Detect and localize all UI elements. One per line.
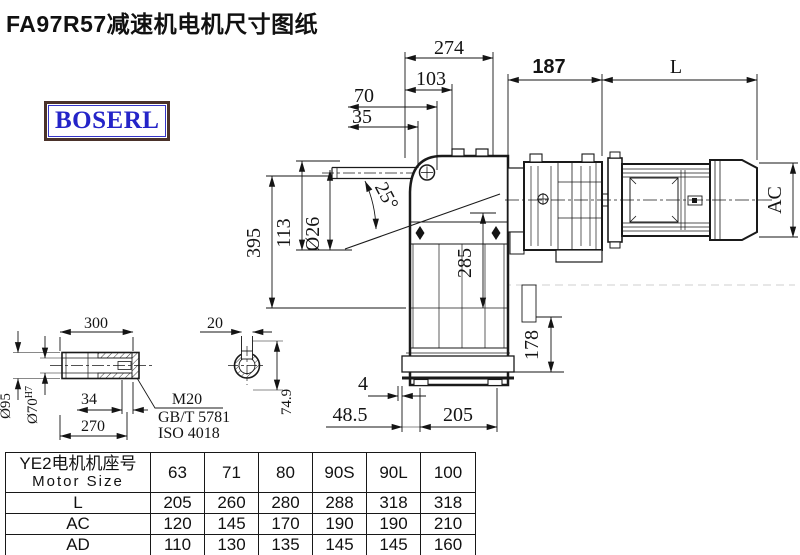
cell-AD-80: 135 [259, 535, 313, 555]
col-80: 80 [259, 453, 313, 493]
callout-gbt5781: GB/T 5781 [158, 409, 230, 426]
row-label-L: L [6, 493, 151, 514]
table-header-cn: YE2电机机座号 [6, 455, 150, 474]
table-header-en: Motor Size [6, 474, 150, 491]
cell-AC-90s: 190 [313, 514, 367, 535]
dim-95: Ø95 [0, 393, 14, 419]
cell-AC-63: 120 [151, 514, 205, 535]
table-row-L: L 205 260 280 288 318 318 [6, 493, 476, 514]
motor-size-table: YE2电机机座号 Motor Size 63 71 80 90S 90L 100… [5, 452, 476, 555]
cell-L-90l: 318 [367, 493, 421, 514]
dim-L: L [670, 56, 682, 78]
dim-113: 113 [273, 218, 295, 247]
dim-274: 274 [434, 37, 464, 59]
table-row-AD: AD 110 130 135 145 145 160 [6, 535, 476, 555]
table-row-AC: AC 120 145 170 190 190 210 [6, 514, 476, 535]
cell-L-100: 318 [421, 493, 476, 514]
dim-178: 178 [521, 330, 543, 360]
dim-25deg: 25° [370, 179, 403, 214]
r57-gear-unit [524, 154, 602, 262]
cell-L-90s: 288 [313, 493, 367, 514]
col-63: 63 [151, 453, 205, 493]
col-100: 100 [421, 453, 476, 493]
cell-AC-100: 210 [421, 514, 476, 535]
row-label-AC: AC [6, 514, 151, 535]
callout-m20: M20 [172, 391, 202, 408]
dim-187: 187 [532, 56, 565, 78]
cell-L-71: 260 [205, 493, 259, 514]
dim-20: 20 [207, 315, 223, 332]
cell-L-80: 280 [259, 493, 313, 514]
dim-74-9: 74.9 [279, 389, 295, 415]
cell-AC-90l: 190 [367, 514, 421, 535]
cell-AD-71: 130 [205, 535, 259, 555]
dim-103: 103 [416, 68, 446, 90]
dim-285: 285 [454, 248, 476, 278]
cell-AC-80: 170 [259, 514, 313, 535]
dim-48-5: 48.5 [333, 404, 368, 426]
cell-AD-90l: 145 [367, 535, 421, 555]
gearbox-front-view [322, 149, 536, 386]
cell-AD-63: 110 [151, 535, 205, 555]
cell-AC-71: 145 [205, 514, 259, 535]
drawing-sheet: FA97R57减速机电机尺寸图纸 BOSERL [0, 0, 800, 555]
cell-AD-100: 160 [421, 535, 476, 555]
dim-70: 70 [354, 85, 374, 107]
col-90l: 90L [367, 453, 421, 493]
dim-395: 395 [243, 228, 265, 258]
callout-iso4018: ISO 4018 [158, 425, 220, 442]
dim-35: 35 [352, 106, 372, 128]
dim-70h7: Ø70H7 [24, 386, 41, 424]
col-90s: 90S [313, 453, 367, 493]
dim-26: Ø26 [302, 217, 324, 251]
shaft-section-view [228, 346, 266, 385]
table-header-motor-size: YE2电机机座号 Motor Size [6, 453, 151, 493]
dim-300: 300 [84, 315, 108, 332]
row-label-AD: AD [6, 535, 151, 555]
dim-AC: AC [764, 186, 786, 214]
col-71: 71 [205, 453, 259, 493]
dim-270: 270 [81, 418, 105, 435]
dim-4: 4 [358, 373, 368, 395]
dim-34: 34 [81, 391, 97, 408]
cell-L-63: 205 [151, 493, 205, 514]
dim-205: 205 [443, 404, 473, 426]
cell-AD-90s: 145 [313, 535, 367, 555]
